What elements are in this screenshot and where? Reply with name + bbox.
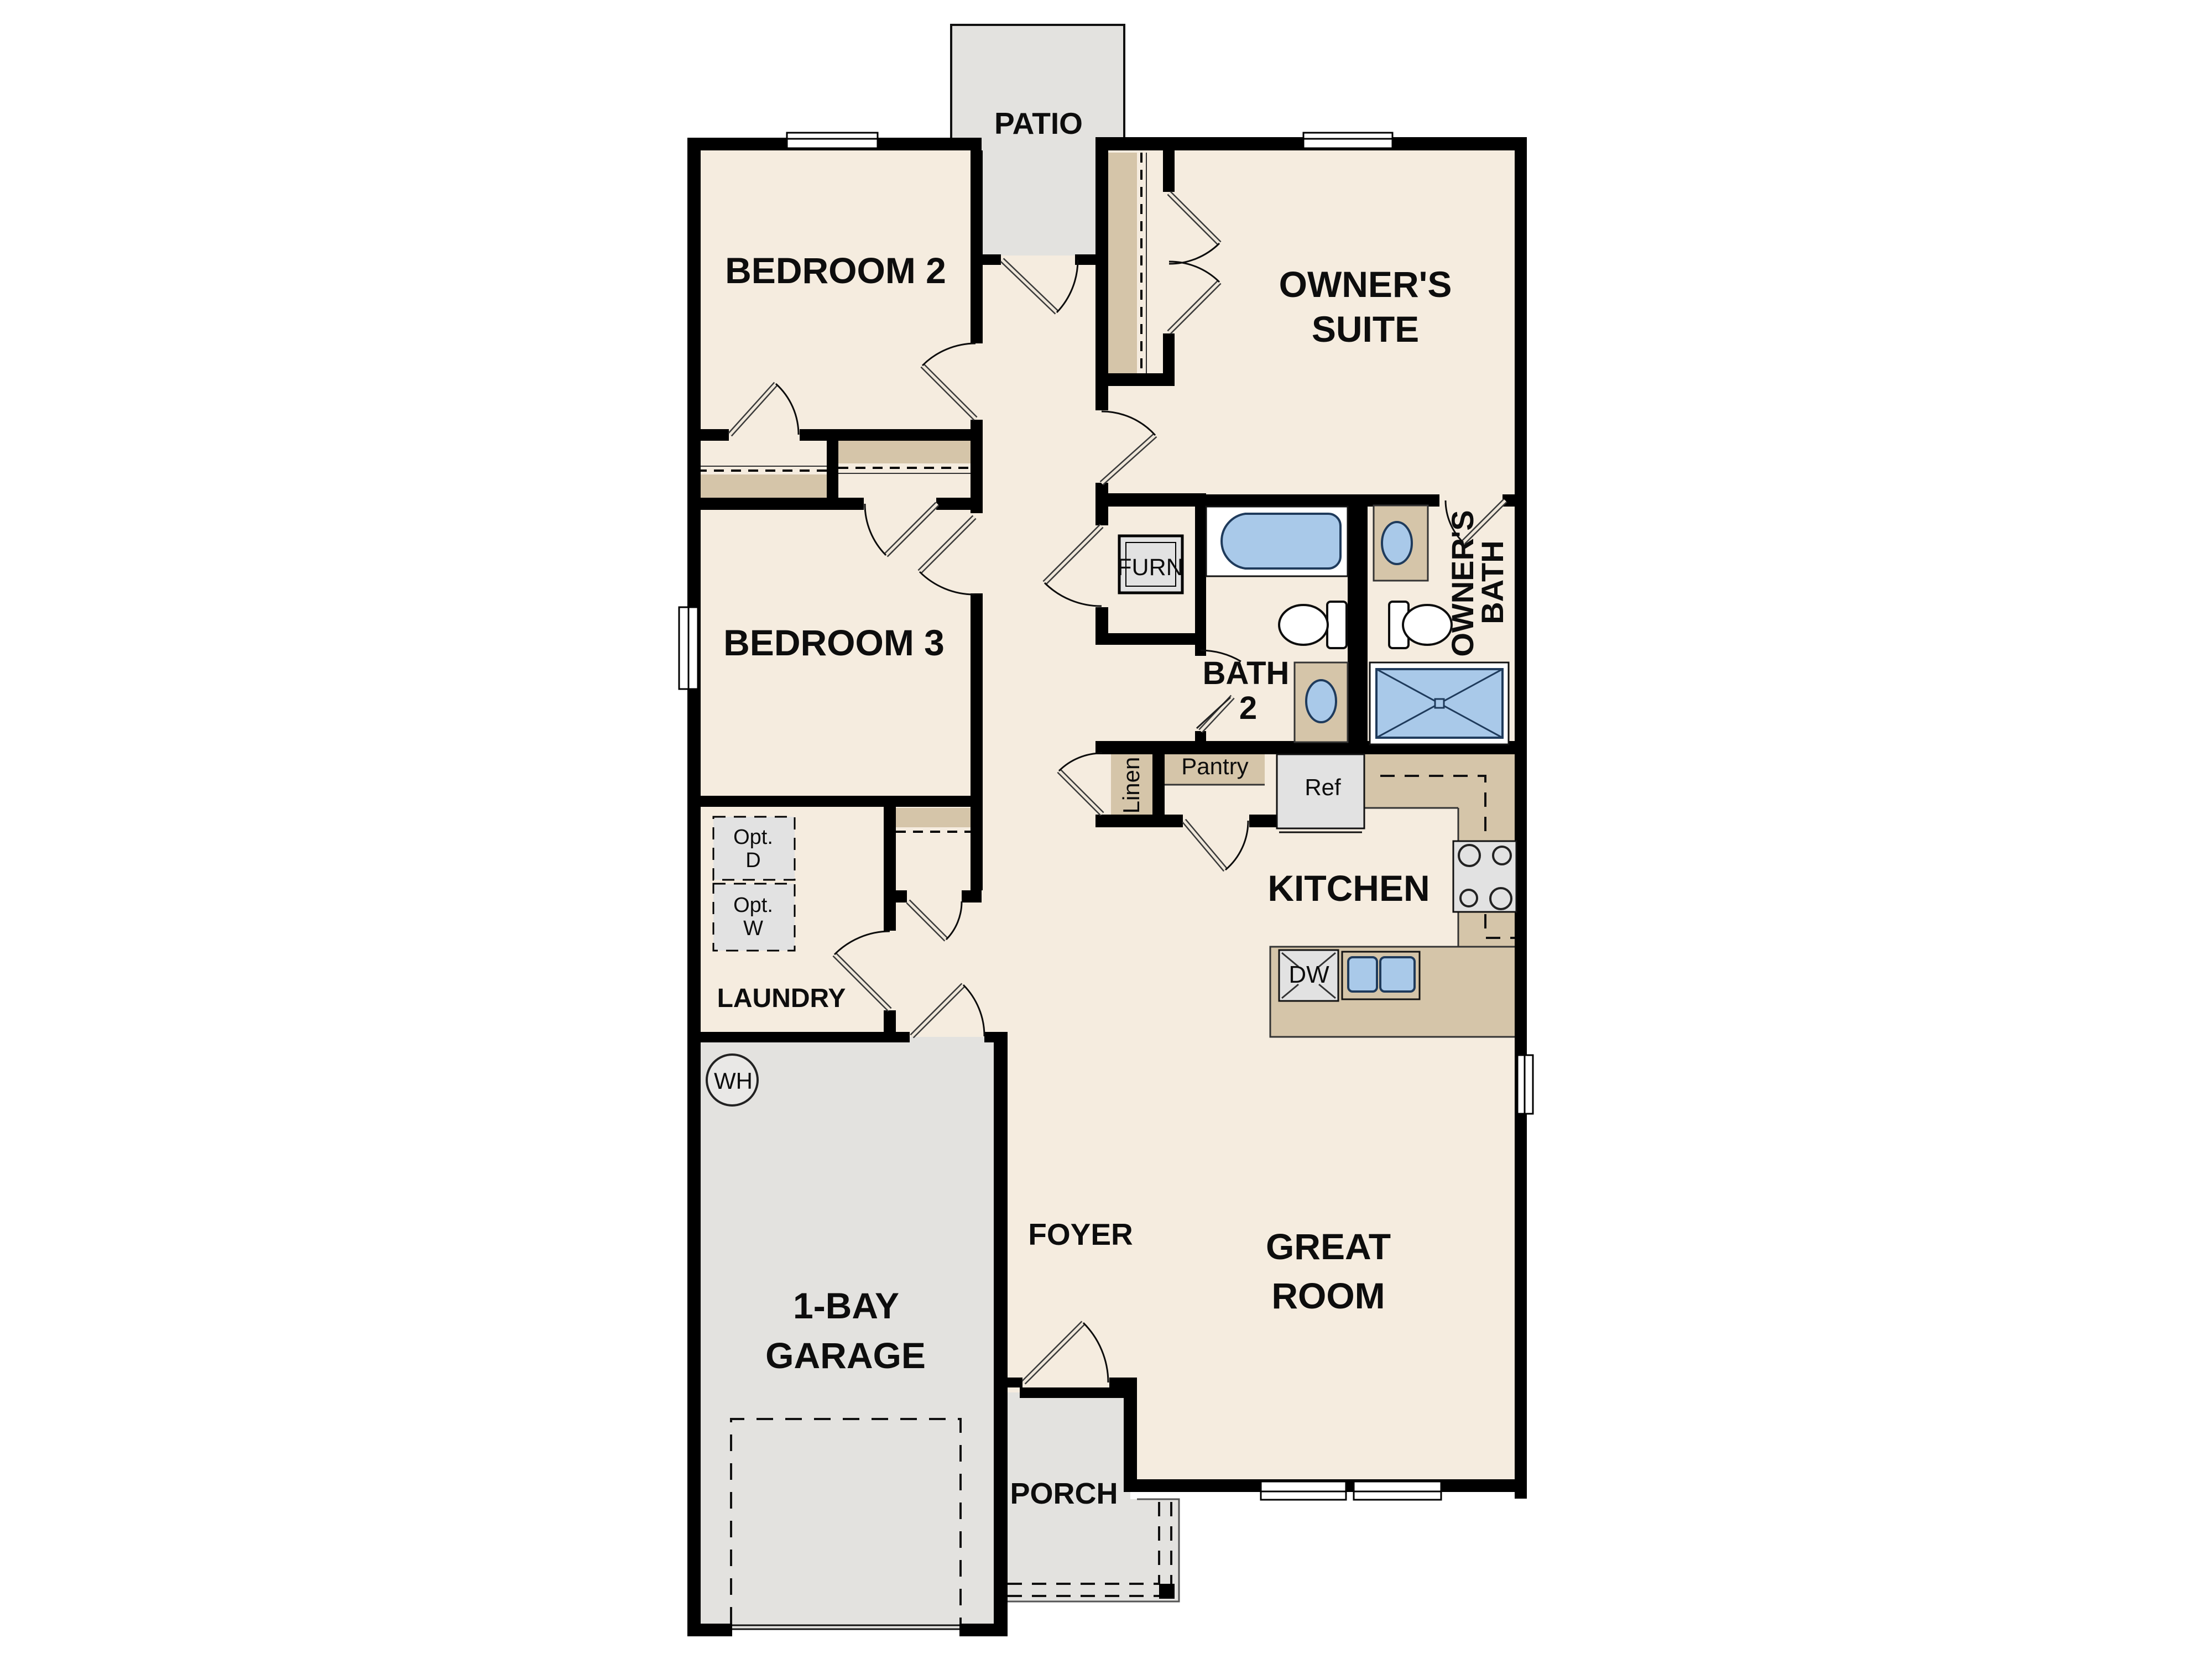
svg-text:Opt.: Opt. — [733, 894, 773, 917]
svg-text:FOYER: FOYER — [1028, 1217, 1133, 1251]
svg-text:W: W — [743, 917, 763, 940]
svg-text:GARAGE: GARAGE — [765, 1335, 926, 1376]
svg-text:FURN: FURN — [1117, 554, 1183, 581]
svg-text:SUITE: SUITE — [1312, 309, 1419, 349]
svg-text:LAUNDRY: LAUNDRY — [717, 984, 846, 1013]
svg-text:2: 2 — [1239, 690, 1257, 726]
svg-text:BEDROOM 2: BEDROOM 2 — [725, 250, 946, 291]
svg-text:PATIO: PATIO — [994, 106, 1083, 140]
svg-text:1-BAY: 1-BAY — [793, 1285, 899, 1326]
svg-text:GREAT: GREAT — [1266, 1226, 1391, 1267]
svg-text:D: D — [745, 849, 760, 872]
svg-text:WH: WH — [714, 1068, 753, 1094]
svg-text:KITCHEN: KITCHEN — [1267, 868, 1430, 909]
svg-text:BATH: BATH — [1203, 655, 1290, 691]
svg-text:BEDROOM 3: BEDROOM 3 — [723, 622, 945, 663]
svg-text:BATH: BATH — [1475, 540, 1510, 624]
svg-text:Opt.: Opt. — [733, 826, 773, 849]
svg-text:PORCH: PORCH — [1010, 1477, 1118, 1510]
svg-text:Ref: Ref — [1305, 774, 1341, 800]
svg-text:ROOM: ROOM — [1271, 1275, 1385, 1316]
svg-text:Pantry: Pantry — [1181, 753, 1248, 779]
svg-text:Linen: Linen — [1118, 757, 1144, 814]
svg-text:DW: DW — [1288, 961, 1329, 988]
svg-text:OWNER'S: OWNER'S — [1279, 264, 1452, 305]
